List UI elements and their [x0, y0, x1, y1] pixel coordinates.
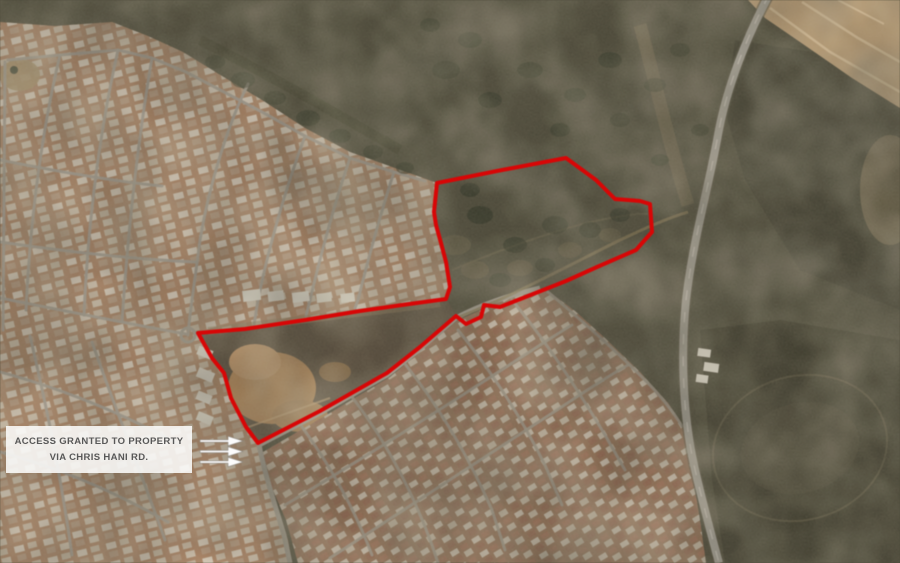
aerial-imagery	[0, 0, 900, 563]
access-callout-label: ACCESS GRANTED TO PROPERTY VIA CHRIS HAN…	[6, 426, 192, 473]
satellite-map-view: ACCESS GRANTED TO PROPERTY VIA CHRIS HAN…	[0, 0, 900, 563]
callout-line-2: VIA CHRIS HANI RD.	[50, 450, 149, 465]
access-arrows	[200, 436, 243, 467]
callout-line-1: ACCESS GRANTED TO PROPERTY	[15, 434, 184, 449]
